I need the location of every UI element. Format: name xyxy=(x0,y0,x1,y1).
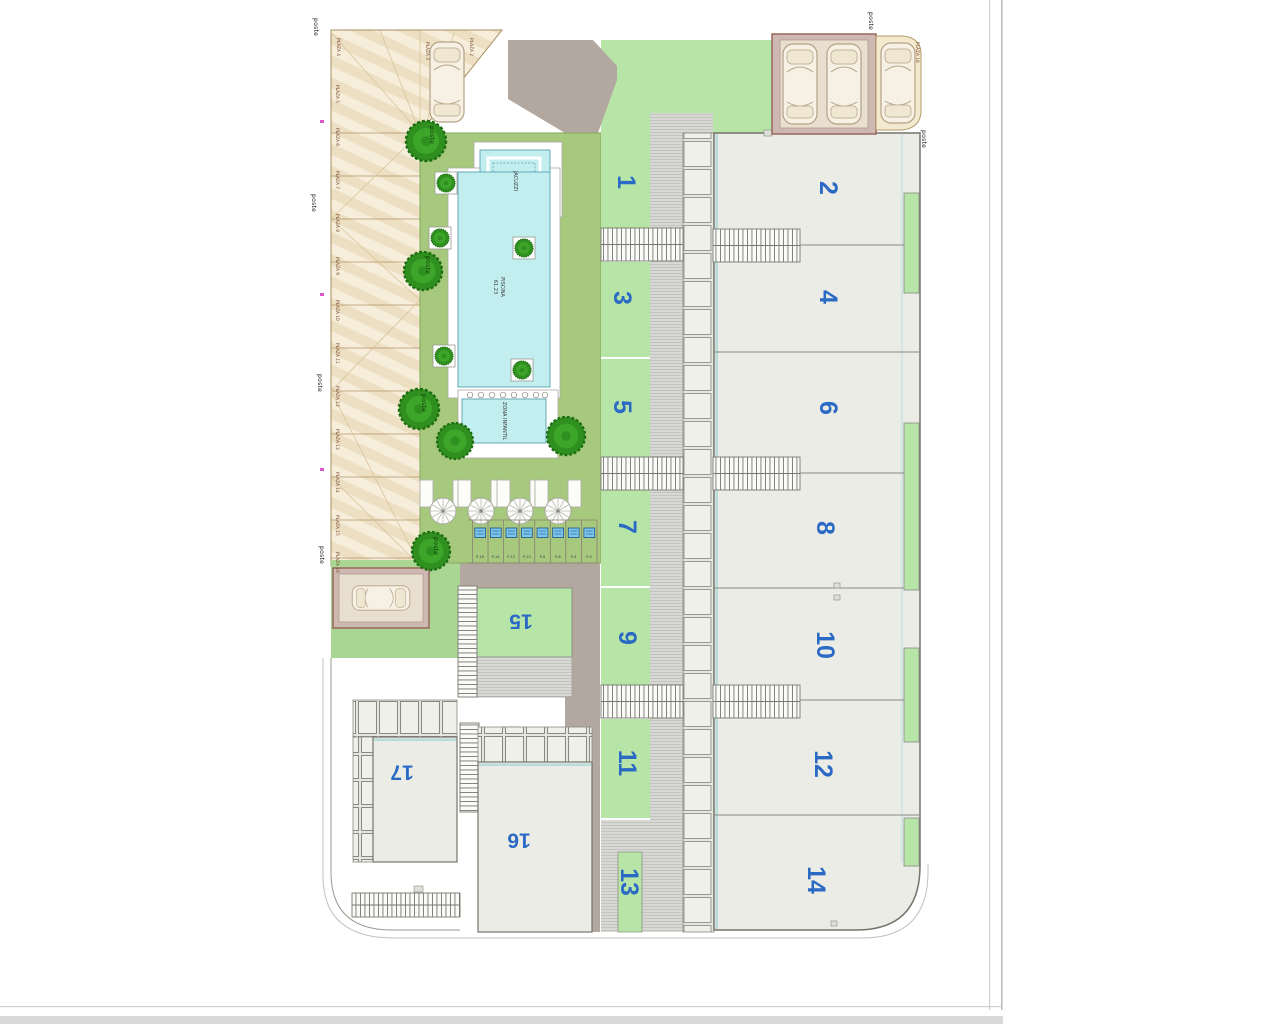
plaza-label: PLAZA 4 xyxy=(335,38,341,56)
unit-number-13: 13 xyxy=(615,868,643,896)
plaza-label: PLAZA 6 xyxy=(334,128,340,146)
stall-label: P-8 xyxy=(540,555,546,559)
unit-number-4: 4 xyxy=(814,290,842,304)
plaza-label: PLAZA 13 xyxy=(334,429,340,450)
site-plan-canvas: P-16 P-14 P-12 P-10 P-8 P-6 P-4 P-2 xyxy=(0,0,1280,1024)
plaza-label: PLAZA 3 xyxy=(424,42,430,60)
car xyxy=(881,43,915,123)
stall-label: P-4 xyxy=(571,555,577,559)
poste-label: poste xyxy=(920,130,927,148)
poste-label: poste xyxy=(318,546,325,564)
top-carport xyxy=(772,34,876,134)
survey-ticks xyxy=(320,120,324,471)
stall-label: P-10 xyxy=(523,555,532,559)
tree xyxy=(437,423,473,459)
site-plan-drawing: P-16 P-14 P-12 P-10 P-8 P-6 P-4 P-2 xyxy=(0,0,1280,1024)
plaza-label: PLAZA 14 xyxy=(334,472,340,493)
pool-area-label: 61.23 xyxy=(492,280,498,294)
plaza-label: PLAZA 11 xyxy=(334,343,340,364)
unit-number-17: 17 xyxy=(390,761,413,784)
tree xyxy=(404,252,442,290)
plaza-label: PLAZA 8 xyxy=(334,214,340,232)
car xyxy=(352,586,410,610)
car xyxy=(783,44,817,124)
plaza-label: PLAZA 18 xyxy=(914,42,920,63)
parasol xyxy=(430,498,456,524)
poste-label: poste xyxy=(316,374,323,392)
plaza-label: PLAZA 15 xyxy=(334,515,340,536)
stall-label: P-2 xyxy=(586,555,592,559)
plaza-label: PLAZA 12 xyxy=(334,386,340,407)
unit-number-10: 10 xyxy=(811,631,839,659)
tree xyxy=(547,417,585,455)
tree xyxy=(412,532,450,570)
unit-number-16: 16 xyxy=(507,829,530,852)
jacuzzi-label: JACUZZI xyxy=(512,170,518,191)
unit-number-15: 15 xyxy=(509,610,533,633)
unit-number-11: 11 xyxy=(613,750,641,777)
poste-label: poste xyxy=(432,537,439,555)
unit-17-room xyxy=(373,737,457,862)
plaza-label: PLAZA 5 xyxy=(334,85,340,103)
unit-number-12: 12 xyxy=(809,750,837,778)
unit-number-9: 9 xyxy=(613,631,641,645)
poste-label: poste xyxy=(867,12,874,30)
kids-zone-label: ZONA INFANTIL xyxy=(501,402,507,440)
car xyxy=(430,42,464,122)
plaza-label: PLAZA 16 xyxy=(334,552,340,573)
stairs-vertical xyxy=(460,723,479,812)
stall-label: P-16 xyxy=(476,555,485,559)
unit-number-3: 3 xyxy=(608,291,636,305)
tree xyxy=(399,389,439,429)
tree xyxy=(406,121,446,161)
stall-label: P-6 xyxy=(555,555,561,559)
pool-label: PISCINA xyxy=(499,277,505,297)
plaza-label: PLAZA 2 xyxy=(468,38,474,56)
poste-label: poste xyxy=(420,394,427,412)
plaza-label: PLAZA 7 xyxy=(334,171,340,189)
bottom-left-carport xyxy=(333,568,429,628)
unit-16-room xyxy=(478,762,592,932)
stall-label: P-12 xyxy=(507,555,515,559)
stairs-vertical xyxy=(458,586,477,697)
unit-number-8: 8 xyxy=(811,521,839,535)
poste-label: poste xyxy=(424,256,431,274)
poste-label: poste xyxy=(312,18,319,36)
stall-label: P-14 xyxy=(492,555,501,559)
poste-label: poste xyxy=(428,126,435,144)
unit-number-1: 1 xyxy=(612,175,640,189)
poste-label: poste xyxy=(310,194,317,212)
plaza-label: PLAZA 10 xyxy=(334,300,340,321)
unit-number-7: 7 xyxy=(613,520,641,534)
unit-number-14: 14 xyxy=(802,866,830,894)
unit-number-5: 5 xyxy=(608,400,636,414)
unit-number-6: 6 xyxy=(814,401,842,415)
unit-number-2: 2 xyxy=(814,181,842,195)
car xyxy=(827,44,861,124)
plaza-label: PLAZA 9 xyxy=(334,257,340,275)
